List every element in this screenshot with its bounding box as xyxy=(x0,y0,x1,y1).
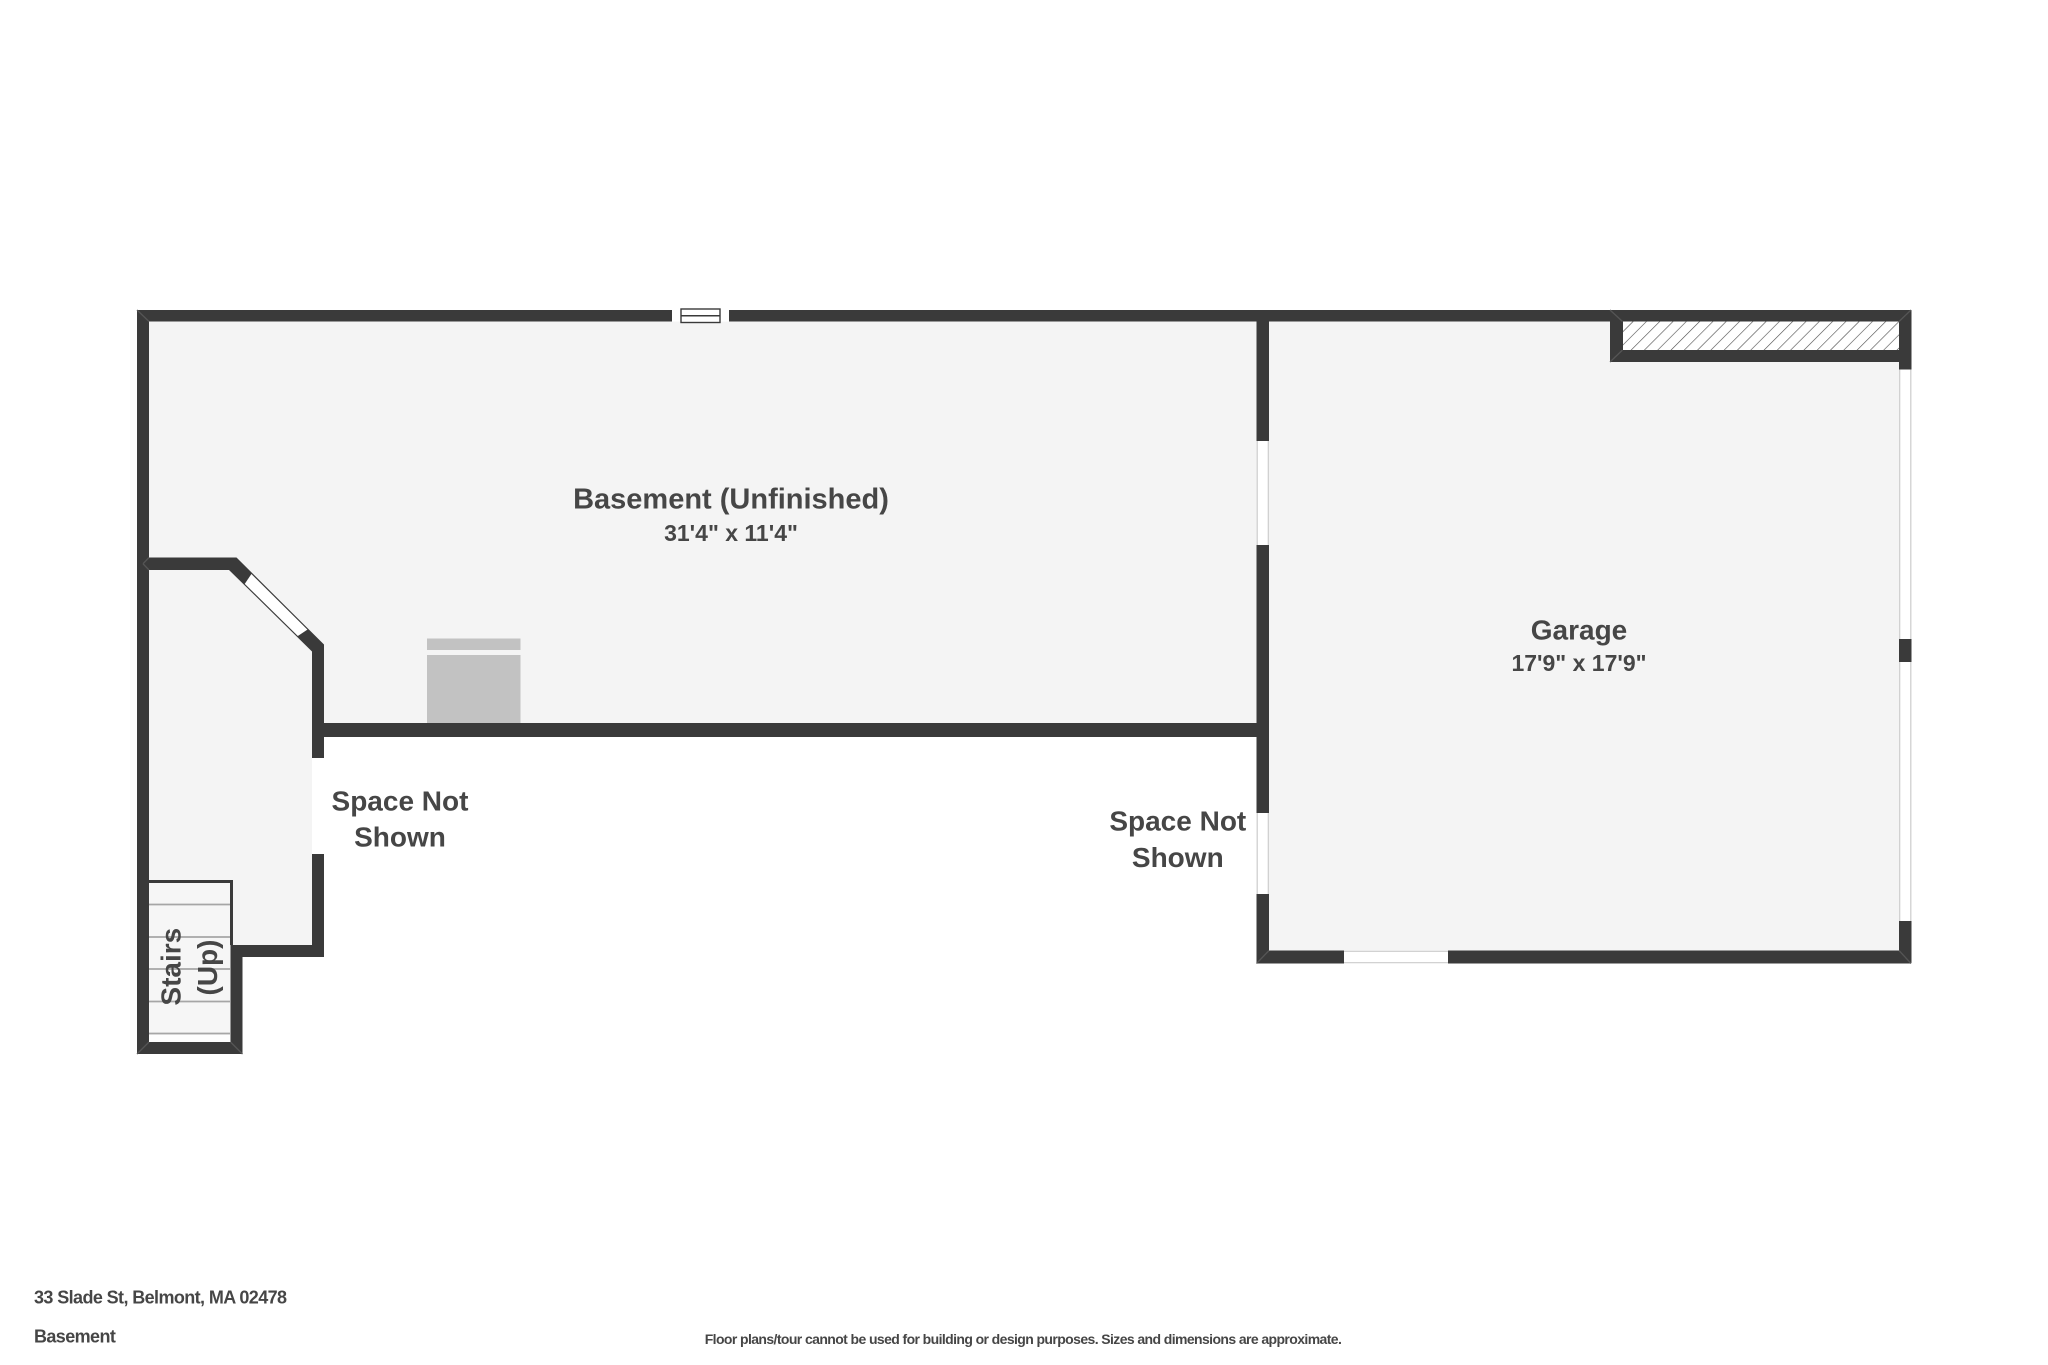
svg-text:17'9" x 17'9": 17'9" x 17'9" xyxy=(1511,650,1646,676)
svg-text:Basement (Unfinished): Basement (Unfinished) xyxy=(573,483,889,515)
svg-text:Shown: Shown xyxy=(1132,842,1224,873)
svg-text:(Up): (Up) xyxy=(192,940,223,996)
svg-text:Space Not: Space Not xyxy=(332,785,469,816)
svg-text:Garage: Garage xyxy=(1531,615,1628,646)
svg-text:Shown: Shown xyxy=(354,821,446,852)
svg-text:33 Slade St, Belmont, MA 02478: 33 Slade St, Belmont, MA 02478 xyxy=(34,1287,287,1307)
svg-text:Basement: Basement xyxy=(34,1326,116,1346)
svg-text:Floor plans/tour cannot be use: Floor plans/tour cannot be used for buil… xyxy=(705,1331,1342,1347)
svg-text:Space Not: Space Not xyxy=(1109,805,1246,836)
svg-text:Stairs: Stairs xyxy=(156,928,187,1006)
svg-text:31'4" x 11'4": 31'4" x 11'4" xyxy=(664,520,798,546)
